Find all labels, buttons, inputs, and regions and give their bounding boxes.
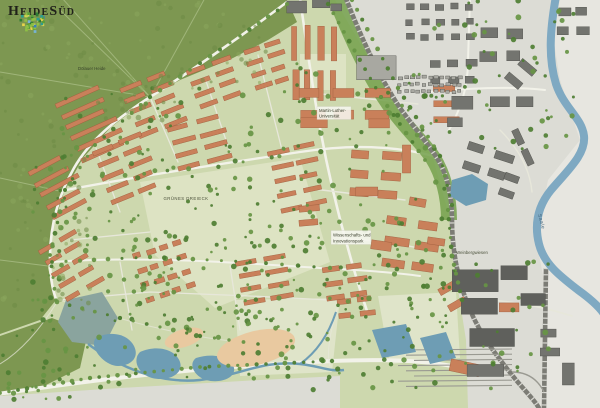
- building-cluster: [461, 298, 497, 314]
- masterplan-map: Dölauer Heide Grünes Dreieck Martin-Luth…: [0, 0, 600, 408]
- building-cluster: [357, 56, 397, 80]
- heidesued-logo: HeideSüd: [8, 6, 98, 20]
- building-cluster: [452, 96, 473, 109]
- label-university-line1: Martin-Luther-: [319, 108, 347, 113]
- building-cluster: [467, 365, 504, 377]
- label-university-line2: Universität: [319, 114, 340, 119]
- label-science-park-line1: Wissenschafts- und: [333, 233, 371, 238]
- label-gruenes-dreieck: Grünes Dreieck: [164, 196, 209, 201]
- building-cluster: [447, 118, 462, 127]
- building-cluster: [470, 329, 515, 347]
- building-cluster: [356, 187, 378, 196]
- building-cluster: [331, 4, 342, 11]
- building-cluster: [501, 266, 528, 280]
- building-cluster: [521, 294, 546, 306]
- mosaic-tree-icon: [8, 6, 60, 40]
- building-cluster: [402, 145, 410, 173]
- building-cluster: [499, 303, 519, 312]
- label-doelauer-heide: Dölauer Heide: [78, 66, 106, 71]
- label-science-park-line2: Innovationspark: [333, 239, 364, 244]
- label-weinbergwiesen: Weinbergwiesen: [456, 250, 488, 255]
- map-canvas: Dölauer Heide Grünes Dreieck Martin-Luth…: [0, 0, 600, 408]
- building-cluster: [369, 119, 390, 128]
- building-cluster: [562, 363, 574, 385]
- building-cluster: [287, 1, 307, 13]
